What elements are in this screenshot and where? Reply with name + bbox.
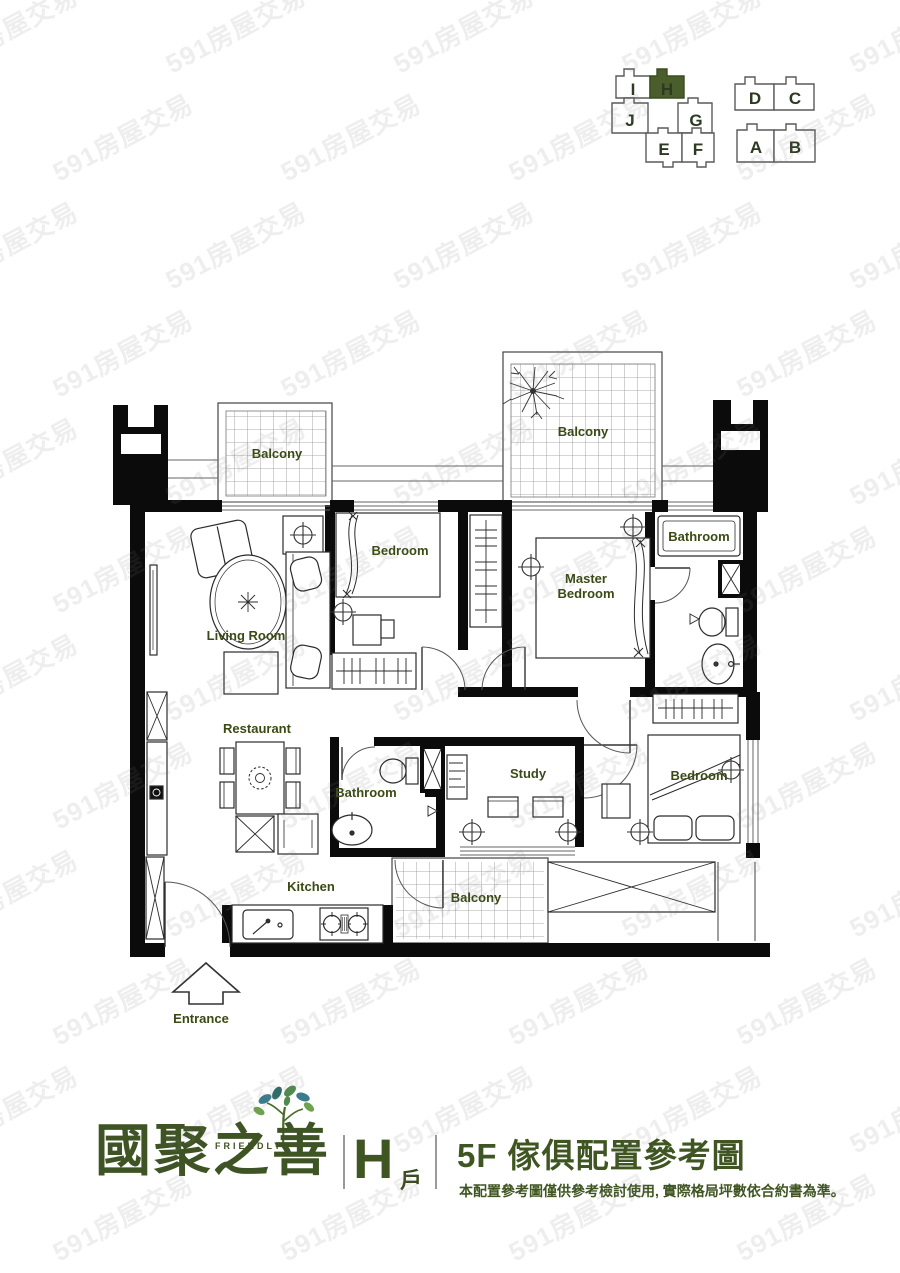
coffee-table [224,652,278,694]
footer-divider-1 [343,1135,345,1189]
unit-label-a: A [750,138,762,157]
door-swing-marker [690,614,699,624]
toilet-top [699,608,738,636]
room-label-master-line2: Bedroom [557,586,614,601]
study-stools [488,797,563,817]
unit-label-c: C [789,89,801,108]
footer-divider-2 [435,1135,437,1189]
unit-label-g: G [689,111,702,130]
left-wall-cabinets [146,692,167,939]
stove [320,908,368,940]
structural-columns [113,400,768,512]
kitchen-sink [243,910,293,939]
corridor-closet [470,515,502,627]
room-label-balcony-tl: Balcony [252,446,303,461]
key-plan [612,69,815,167]
room-label-bedroom-right: Bedroom [670,768,727,783]
room-label-balcony-bottom: Balcony [451,890,502,905]
wardrobe-top-bedroom [332,653,416,689]
toilet-middle [380,758,418,784]
brand-tagline: FRIENDLY [215,1141,283,1151]
room-label-study: Study [510,766,547,781]
bookshelf [447,755,467,799]
room-label-bathroom-middle: Bathroom [335,785,396,800]
room-label-master-line1: Master [565,571,607,586]
sofa [286,552,330,688]
wardrobe-right-bedroom [653,694,738,723]
unit-label-f: F [693,140,703,159]
unit-label-e: E [658,140,669,159]
unit-letter: H [353,1131,393,1187]
machine-zone [548,862,755,941]
desk-top-bedroom [353,615,394,645]
dining-table [220,742,300,814]
bed-right [648,735,740,843]
room-label-entrance: Entrance [173,1011,229,1026]
floor-plan-drawing: I H J G E F D C A B [0,0,900,1273]
room-label-balcony-tr: Balcony [558,424,609,439]
brand-name: 國聚之善 [95,1123,331,1179]
unit-label-h: H [661,80,673,99]
room-label-kitchen: Kitchen [287,879,335,894]
unit-label-i: I [631,80,636,99]
kitchen-counter [232,905,383,943]
unit-label-j: J [625,111,634,130]
sink-top [702,644,740,684]
room-label-restaurant: Restaurant [223,721,292,736]
room-label-bathroom-top: Bathroom [668,529,729,544]
unit-suffix: 戶 [400,1163,422,1195]
unit-label-b: B [789,138,801,157]
page: I H J G E F D C A B [0,0,900,1273]
floor-plan-title: 5F 傢俱配置參考圖 [457,1129,746,1177]
floor-plan-disclaimer: 本配置參考圖僅供參考檢討使用, 實際格局坪數依合約書為準。 [459,1181,845,1201]
room-label-bedroom-top: Bedroom [371,543,428,558]
entrance-arrow [173,963,239,1004]
footer: 國聚之善 FRIENDLY H 戶 5F 傢俱配置參考圖 本配置參考圖僅供參考檢… [95,1085,855,1235]
door-swing-marker [428,806,437,816]
tv-unit [150,565,157,655]
desk-chair-right [602,784,630,818]
room-label-living-room: Living Room [207,628,286,643]
unit-label-d: D [749,89,761,108]
sideboard [236,814,318,854]
